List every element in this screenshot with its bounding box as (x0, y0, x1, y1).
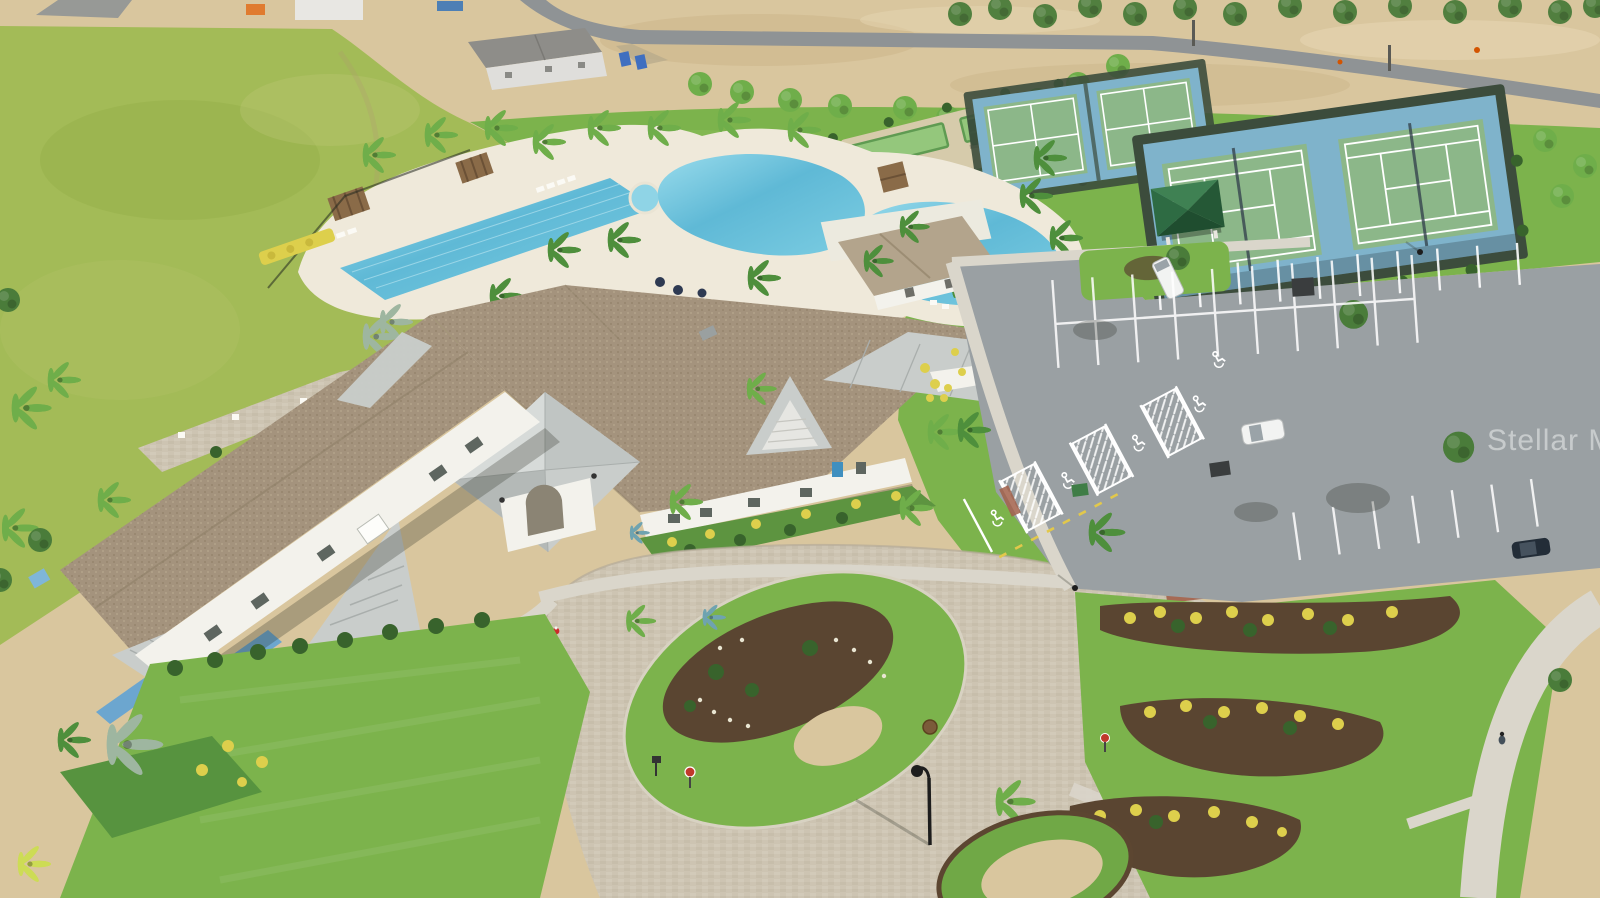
blue-door (832, 462, 843, 477)
southeast-landscaping (1070, 580, 1600, 898)
tennis-pavilion (1151, 180, 1226, 247)
south-lawn (18, 612, 590, 898)
spa (630, 183, 660, 213)
manhole (923, 720, 937, 734)
aerial-photo: Stellar MLS (0, 0, 1600, 898)
aerial-scene (0, 0, 1600, 898)
